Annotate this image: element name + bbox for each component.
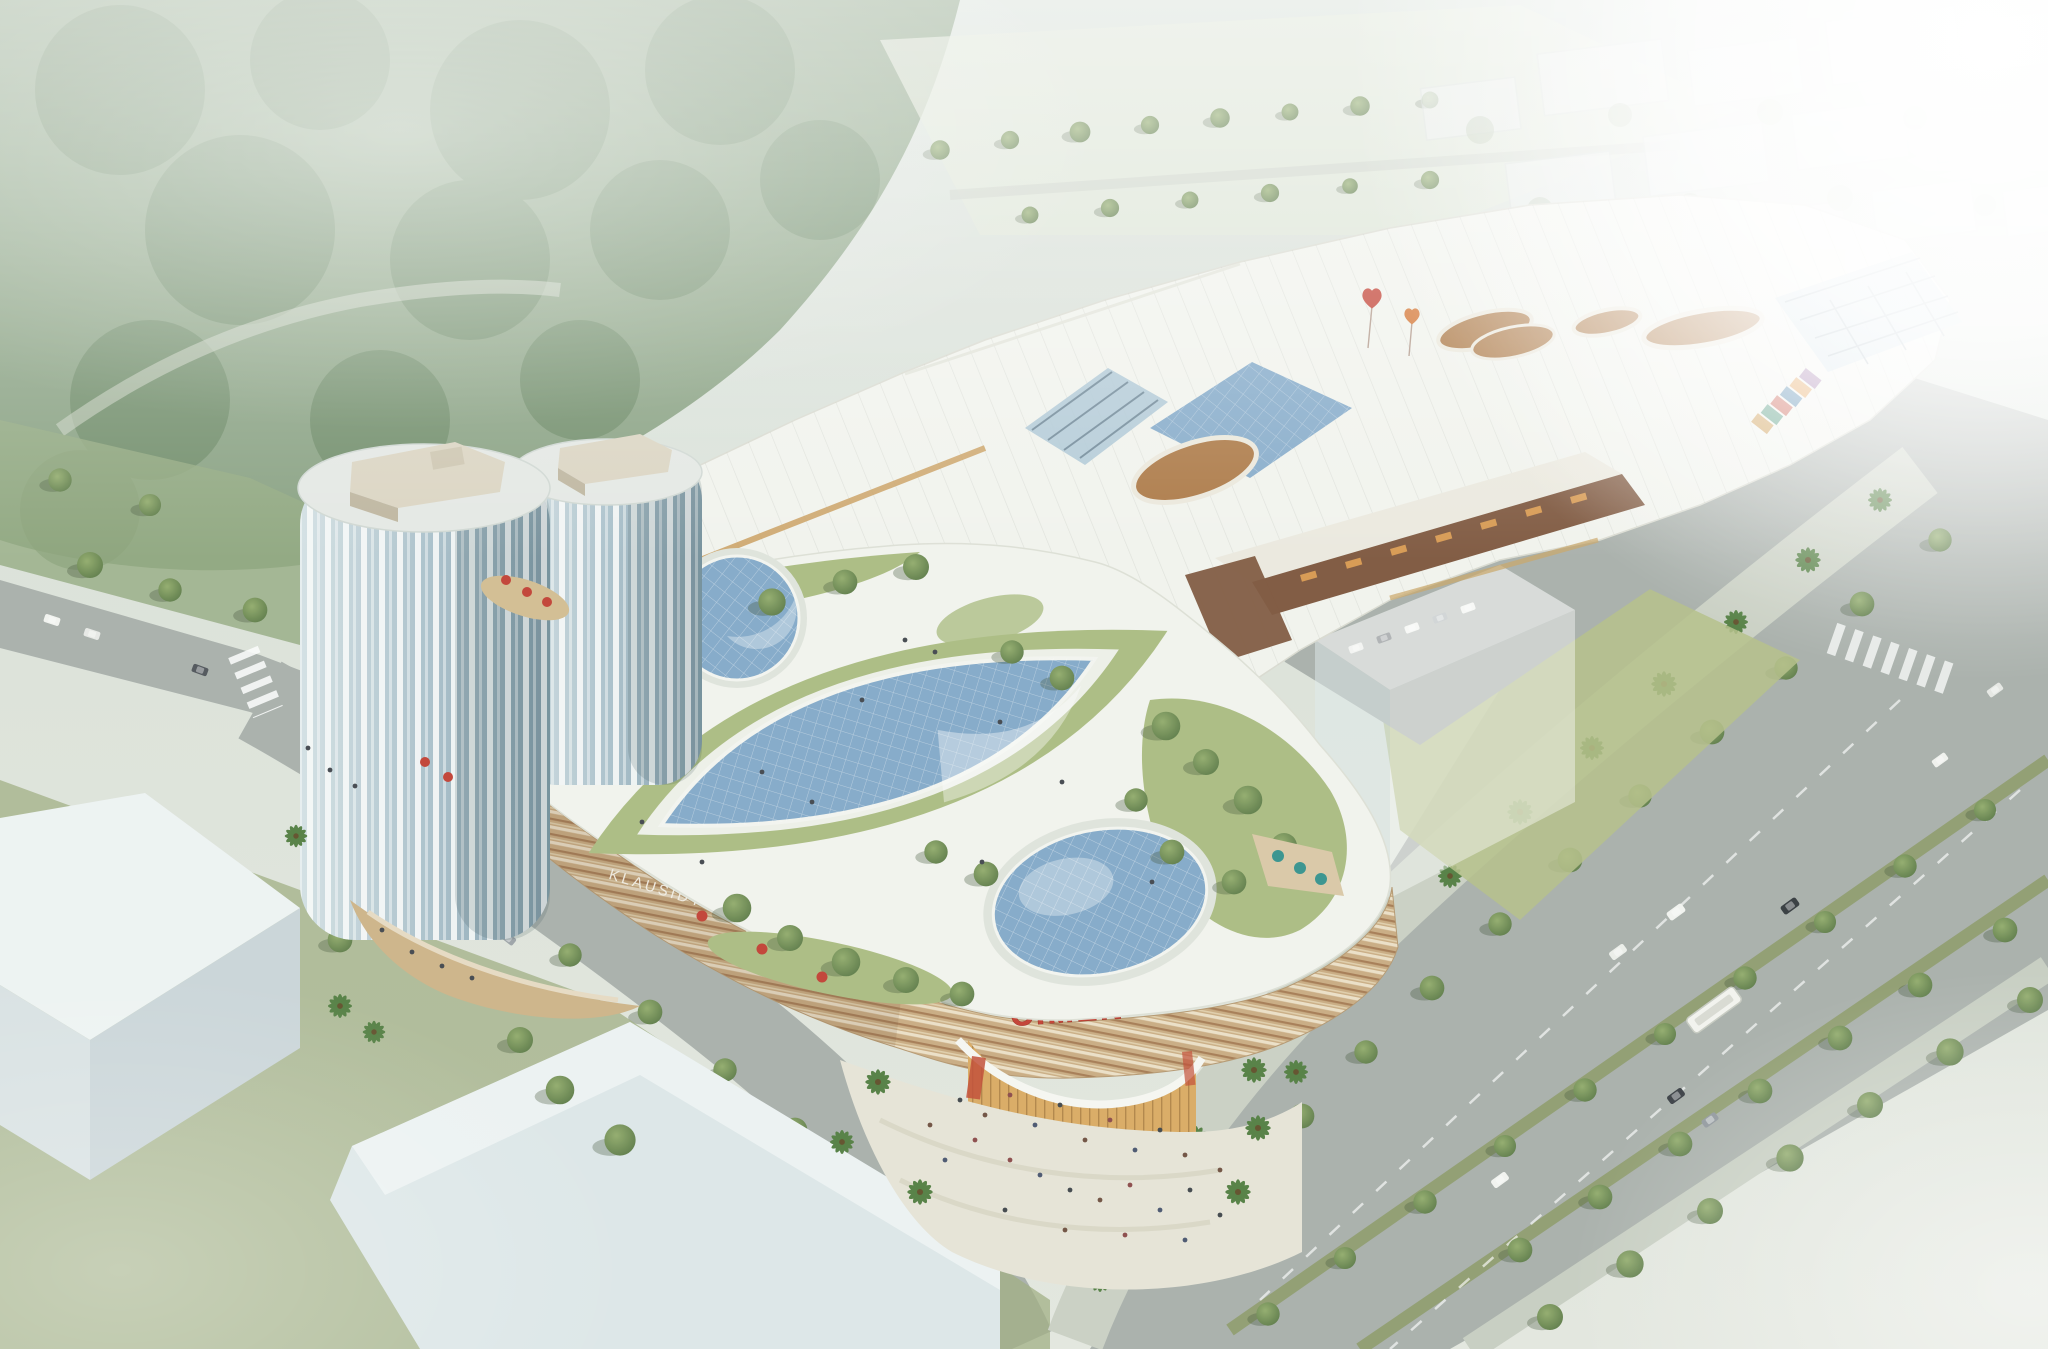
aerial-rendering: CIMEN KLAUSIDY MIA DECO <box>0 0 2048 1349</box>
atmosphere <box>0 0 2048 1349</box>
rendering-canvas: CIMEN KLAUSIDY MIA DECO <box>0 0 2048 1349</box>
